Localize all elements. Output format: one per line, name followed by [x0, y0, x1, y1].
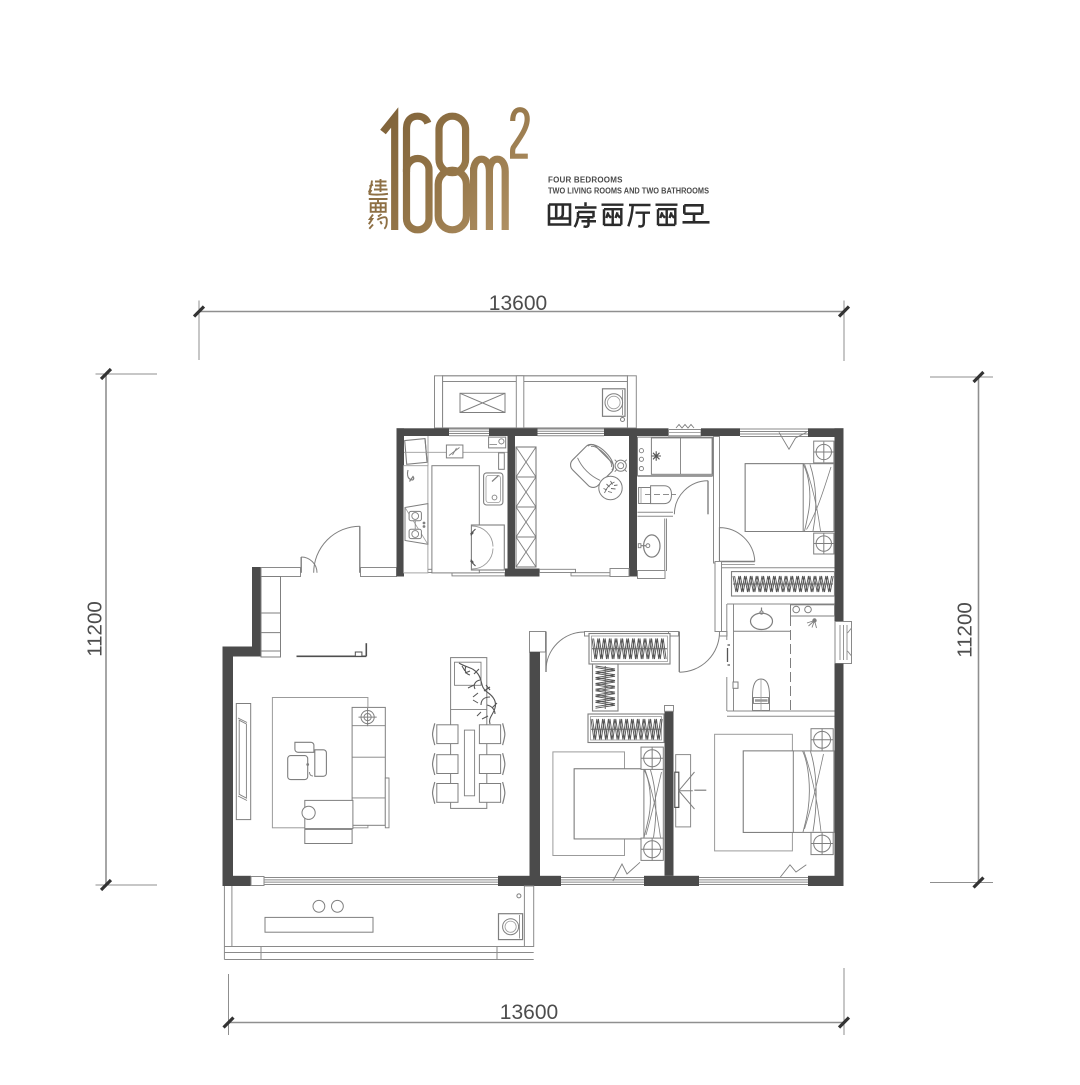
- svg-text:TWO LIVING ROOMS AND TWO BATHR: TWO LIVING ROOMS AND TWO BATHROOMS: [548, 186, 710, 195]
- svg-text:FOUR BEDROOMS: FOUR BEDROOMS: [548, 175, 623, 184]
- svg-text:13600: 13600: [500, 1001, 558, 1024]
- svg-text:11200: 11200: [84, 601, 107, 656]
- svg-text:13600: 13600: [489, 292, 547, 315]
- svg-text:11200: 11200: [954, 602, 977, 657]
